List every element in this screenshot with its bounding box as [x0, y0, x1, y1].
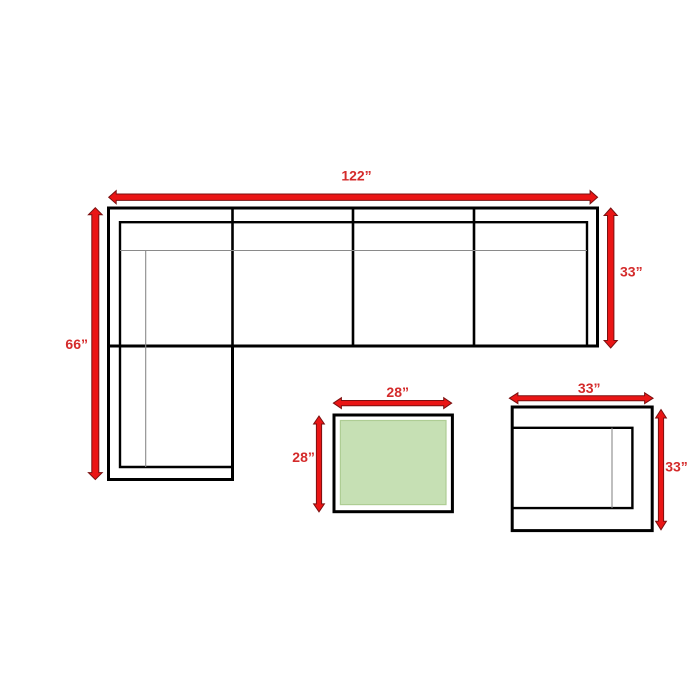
svg-text:28”: 28” [386, 384, 409, 400]
svg-text:33”: 33” [620, 264, 643, 280]
svg-text:28”: 28” [292, 449, 315, 465]
svg-text:122”: 122” [341, 168, 371, 184]
svg-text:66”: 66” [65, 336, 88, 352]
svg-text:33”: 33” [578, 380, 601, 396]
svg-text:33”: 33” [665, 459, 688, 475]
